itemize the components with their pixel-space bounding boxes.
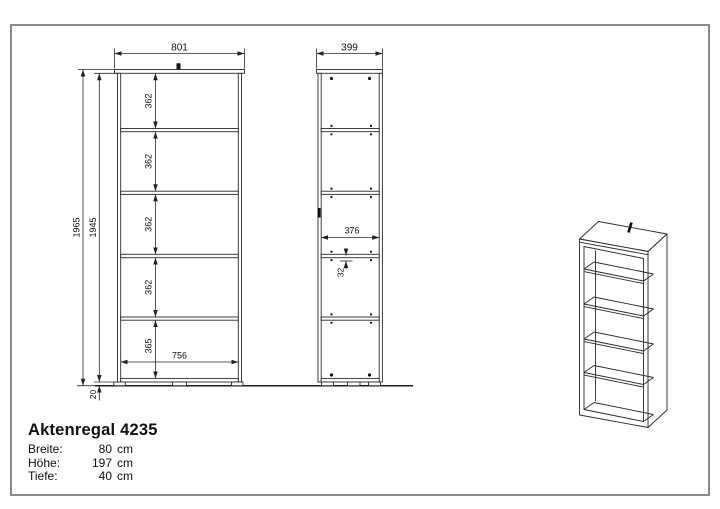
front-bottom-panel: [121, 378, 239, 382]
front-shelf-2: [121, 191, 239, 194]
side-view-drawing: 399 376 32: [317, 43, 383, 386]
front-foot-right: [232, 382, 244, 386]
side-bottom-panel: [321, 378, 379, 382]
side-shelf-1: [321, 129, 379, 132]
side-depth-label: 399: [341, 43, 358, 54]
spec-height-label: Höhe:: [28, 457, 80, 471]
front-inner-width-label: 756: [172, 351, 187, 361]
front-dimensions: [77, 49, 245, 401]
spec-width: Breite:80cm: [28, 443, 158, 457]
front-dimension-labels: 801 1965 1945 362 362 362 362 365 756 20: [72, 43, 189, 400]
spec-width-value: 80: [80, 443, 112, 457]
front-compartment-5-label: 365: [144, 338, 154, 353]
side-hole-offset-label: 32: [336, 268, 346, 278]
spec-height: Höhe:197cm: [28, 457, 158, 471]
front-height-body-label: 1945: [88, 217, 98, 237]
product-title: Aktenregal 4235: [28, 421, 158, 440]
side-foot-middle: [348, 382, 361, 386]
spec-depth: Tiefe:40cm: [28, 470, 158, 484]
side-foot-front: [369, 382, 381, 386]
front-shelf-3: [121, 254, 239, 257]
front-view-drawing: 801 1965 1945 362 362 362 362 365 756 20: [72, 43, 245, 401]
side-top-panel: [317, 70, 383, 74]
front-shelf-1: [121, 129, 239, 132]
front-top-panel: [115, 70, 245, 74]
side-inner-depth-label: 376: [344, 226, 359, 236]
side-foot-back: [322, 382, 334, 386]
perspective-view-drawing: [580, 222, 668, 428]
spec-height-value: 197: [80, 457, 112, 471]
side-front-panel: [379, 73, 382, 382]
spec-width-label: Breite:: [28, 443, 80, 457]
drawing-sheet: 801 1965 1945 362 362 362 362 365 756 20: [0, 0, 720, 509]
front-width-label: 801: [171, 43, 188, 54]
spec-depth-value: 40: [80, 470, 112, 484]
front-plinth-label: 20: [88, 390, 98, 400]
spec-height-unit: cm: [117, 456, 133, 470]
side-shelf-4: [321, 317, 379, 320]
spec-depth-label: Tiefe:: [28, 470, 80, 484]
front-compartment-2-label: 362: [144, 154, 154, 169]
front-foot-left: [114, 382, 126, 386]
front-foot-middle: [173, 382, 187, 386]
front-height-total-label: 1965: [72, 217, 82, 237]
perspective-front-face: [580, 239, 649, 428]
front-left-side-panel: [118, 73, 121, 382]
front-compartment-3-label: 362: [144, 217, 154, 232]
front-shelf-4: [121, 317, 239, 320]
front-compartment-4-label: 362: [144, 280, 154, 295]
spec-width-unit: cm: [117, 442, 133, 456]
side-back-panel: [318, 73, 321, 382]
front-compartment-1-label: 362: [144, 93, 154, 108]
side-shelf-2: [321, 191, 379, 194]
front-cabinet-body: [114, 63, 245, 385]
front-top-fitting-mark: [177, 63, 181, 69]
spec-depth-unit: cm: [117, 469, 133, 483]
perspective-right-face: [648, 234, 667, 428]
front-right-side-panel: [238, 73, 241, 382]
side-back-fitting-mark: [318, 208, 321, 218]
title-block: Aktenregal 4235 Breite:80cm Höhe:197cm T…: [28, 421, 158, 484]
side-shelf-3: [321, 254, 379, 257]
side-dimension-labels: 399 376 32: [336, 43, 360, 278]
side-dimensions: [317, 49, 383, 270]
